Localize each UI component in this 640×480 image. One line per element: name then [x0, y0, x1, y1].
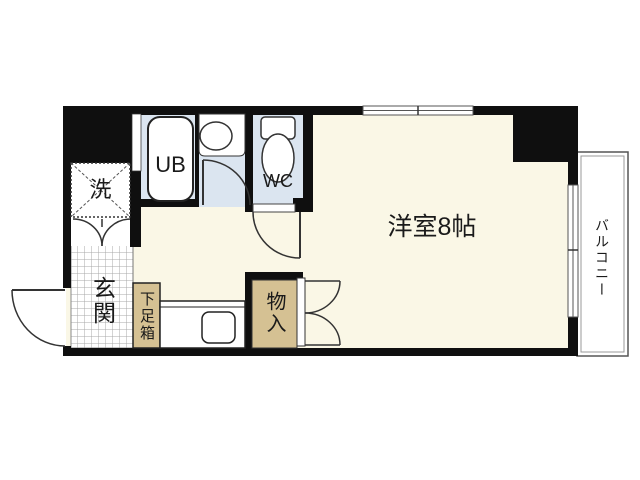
- floor-plan: 洗 UB WC 玄関 下足箱 物入 洋室8帖 バルコニー: [0, 0, 640, 480]
- wall-left-upper: [63, 106, 71, 288]
- laundry-label: 洗: [71, 163, 130, 217]
- wall-storage-top: [245, 272, 303, 280]
- wall-ub-basin-divider: [195, 112, 199, 207]
- wall-block-top-left: [63, 106, 141, 163]
- balcony-label: バルコニー: [591, 208, 613, 308]
- unit-bath-label: UB: [148, 148, 193, 182]
- wall-right-of-wc: [303, 106, 313, 212]
- folding-door: [71, 217, 133, 246]
- balcony-window: [568, 185, 578, 317]
- shoe-box-label: 下足箱: [134, 285, 159, 347]
- kitchen-counter: [160, 301, 245, 348]
- bath-door-slot: [132, 114, 141, 171]
- toilet-label: WC: [253, 170, 303, 192]
- wall-right-lower: [568, 317, 578, 356]
- kitchen-sink: [202, 312, 235, 343]
- wc-threshold: [253, 204, 295, 212]
- top-window: [363, 106, 473, 115]
- wall-strip-left-of-bath: [130, 163, 141, 247]
- wall-storage-left: [245, 272, 252, 348]
- storage-label: 物入: [262, 281, 286, 345]
- wall-right-upper: [568, 106, 578, 185]
- floor-plan-drawing: [0, 0, 640, 480]
- wall-bottom: [63, 348, 578, 356]
- entrance-label: 玄関: [87, 253, 117, 349]
- wash-basin: [199, 114, 245, 156]
- entrance-door: [12, 290, 65, 346]
- main-room-label: 洋室8帖: [352, 211, 512, 243]
